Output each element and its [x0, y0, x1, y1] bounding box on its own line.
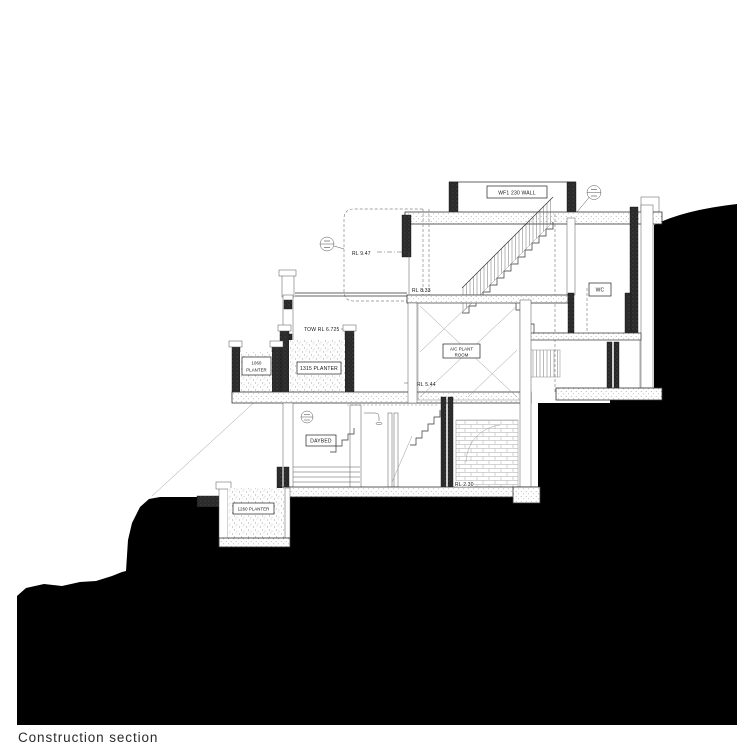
louvre-screen — [529, 350, 560, 377]
door-leaf-a — [388, 413, 392, 487]
planter-1315-label: 1315 PLANTER — [300, 366, 338, 372]
ac-room-left-wall — [408, 303, 417, 403]
ground-floor-slab — [283, 487, 540, 497]
brick-wall — [456, 420, 518, 487]
wc-base-slab — [556, 388, 662, 400]
planter-1315-wall-right — [345, 328, 354, 395]
planter-1260-coping — [216, 482, 231, 489]
mid-right-wall — [520, 300, 531, 490]
terrace-coping — [279, 270, 296, 276]
detail-bubble-daybed — [301, 411, 313, 423]
daybed-label: DAYBED — [310, 439, 332, 445]
planter-1060-wall-right — [272, 344, 281, 398]
mid-deck-slab — [232, 392, 531, 403]
planter-1060-wall-left — [232, 344, 240, 398]
planter-1060-label-line1: 1060 — [252, 361, 262, 366]
footing — [513, 487, 540, 503]
wc-label: WC — [596, 288, 605, 294]
right-wall — [641, 205, 653, 388]
lower-mullion-a — [607, 342, 612, 388]
planter-1260-wall-left — [219, 484, 228, 543]
retaining-bar — [197, 496, 219, 507]
wc-floor-slab — [530, 333, 641, 340]
drawing-caption: Construction section — [18, 730, 158, 745]
wc-mullion-right — [625, 293, 631, 336]
construction-section-drawing: WF1 230 WALL RL 9.47 — [0, 0, 750, 750]
right-wall-core — [630, 207, 638, 337]
tow-label: TOW RL 6.725 — [304, 327, 339, 333]
stair-wall — [567, 218, 575, 295]
core-wall-b — [448, 397, 453, 488]
wc-mullion-left — [568, 293, 574, 336]
terrace-upstand — [282, 273, 294, 297]
ac-room-label-line1: A/C PLANT — [450, 347, 473, 352]
rl-lower-label: RL 2.30 — [455, 482, 474, 488]
left-post — [402, 215, 411, 257]
upper-floor-slab — [407, 295, 568, 303]
rl-roof-marker — [407, 251, 409, 253]
ac-room-label-line2: ROOM — [455, 353, 469, 358]
wall-tag-label: WF1 230 WALL — [498, 191, 536, 197]
core-wall-a — [441, 397, 446, 488]
planter-1260-base — [219, 538, 290, 547]
rl-roof-label: RL 9.47 — [352, 251, 371, 257]
planter-1260-label: 1260 PLANTER — [238, 507, 270, 512]
rl-upper-label: RL 8.33 — [412, 288, 431, 294]
planter-1315-wall-left — [280, 328, 289, 395]
drawing-sheet: WF1 230 WALL RL 9.47 — [0, 0, 750, 750]
lower-mullion-b — [614, 342, 619, 388]
planter-1060-label-line2: PLANTER — [246, 368, 267, 373]
